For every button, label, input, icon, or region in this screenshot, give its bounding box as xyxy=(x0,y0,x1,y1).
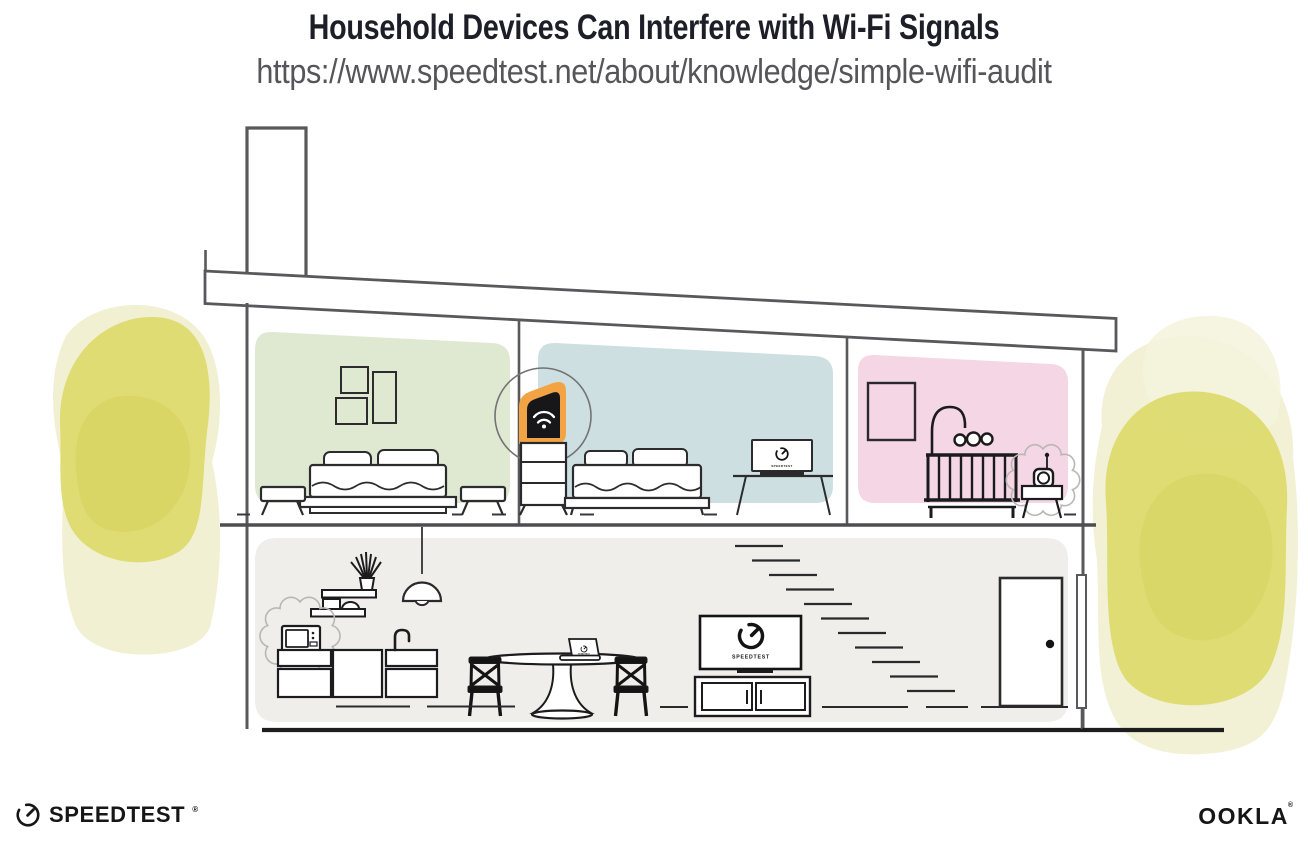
mattress xyxy=(573,465,701,498)
door xyxy=(1000,578,1062,706)
ookla-wordmark: OOKLA xyxy=(1198,803,1289,830)
bowl xyxy=(342,602,359,609)
dresser xyxy=(520,443,567,515)
tv: SPEEDTEST xyxy=(700,616,801,672)
downspout xyxy=(1077,575,1086,729)
chimney xyxy=(247,128,306,282)
speedtest-wordmark: SPEEDTEST xyxy=(49,802,185,828)
foliage-right xyxy=(1093,316,1298,755)
door-knob xyxy=(1046,640,1054,648)
speedtest-trademark: ® xyxy=(192,805,198,814)
bed-base xyxy=(310,507,446,513)
foliage-left xyxy=(53,305,220,655)
media-console xyxy=(695,677,810,716)
bedroom-monitor-label: SPEEDTEST xyxy=(771,464,792,468)
stool xyxy=(461,487,505,515)
bed-platform xyxy=(300,497,456,507)
ookla-logo: OOKLA ® xyxy=(1198,803,1294,830)
ookla-trademark: ® xyxy=(1288,802,1293,809)
shelf xyxy=(311,609,365,617)
house-illustration: SPEEDTEST xyxy=(0,0,1308,861)
speedtest-logo: SPEEDTEST ® xyxy=(14,800,198,830)
stool xyxy=(261,487,305,515)
antenna-tip xyxy=(1045,453,1049,457)
bedroom-monitor: SPEEDTEST xyxy=(752,440,812,476)
tv-label: SPEEDTEST xyxy=(732,655,770,661)
bed xyxy=(565,449,709,515)
shelf xyxy=(322,590,376,598)
bed xyxy=(300,450,456,513)
microwave xyxy=(282,626,320,651)
speedtest-gauge-icon xyxy=(14,800,42,830)
crib xyxy=(924,455,1020,518)
bed-platform xyxy=(565,498,709,508)
table-base xyxy=(532,711,592,719)
mattress xyxy=(310,465,446,497)
